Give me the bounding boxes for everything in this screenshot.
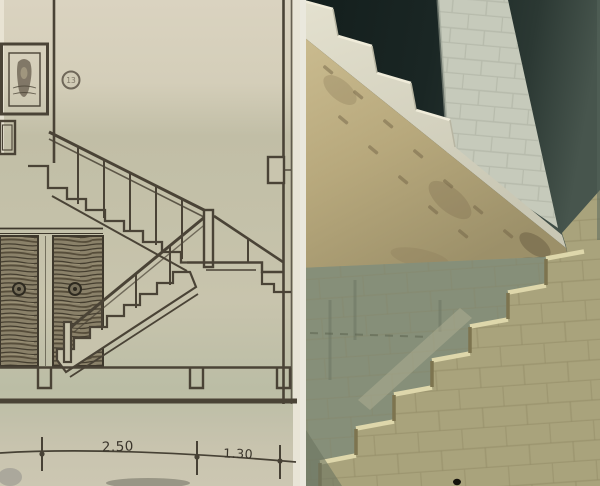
wall-bracket	[268, 157, 284, 183]
photo-border	[300, 0, 306, 486]
detail-circle-marker: 13	[63, 72, 80, 89]
panel-knob-left	[13, 283, 25, 295]
paper-right-margin	[293, 0, 300, 486]
dimension-label-left: 2.50	[102, 438, 135, 455]
dimension-label-right: 1.30	[223, 445, 253, 461]
wood-panel-left	[0, 236, 38, 366]
blueprint-panel: 13 2.50 1.30	[0, 0, 300, 486]
photo-panel	[300, 0, 600, 486]
debris-dot	[453, 479, 461, 485]
stairs-meme-image: 13 2.50 1.30	[0, 0, 600, 486]
detail-marker-label: 13	[66, 76, 76, 85]
newel-post	[204, 210, 213, 267]
bottom-newel-post	[64, 322, 71, 362]
panel-knob-right	[69, 283, 81, 295]
